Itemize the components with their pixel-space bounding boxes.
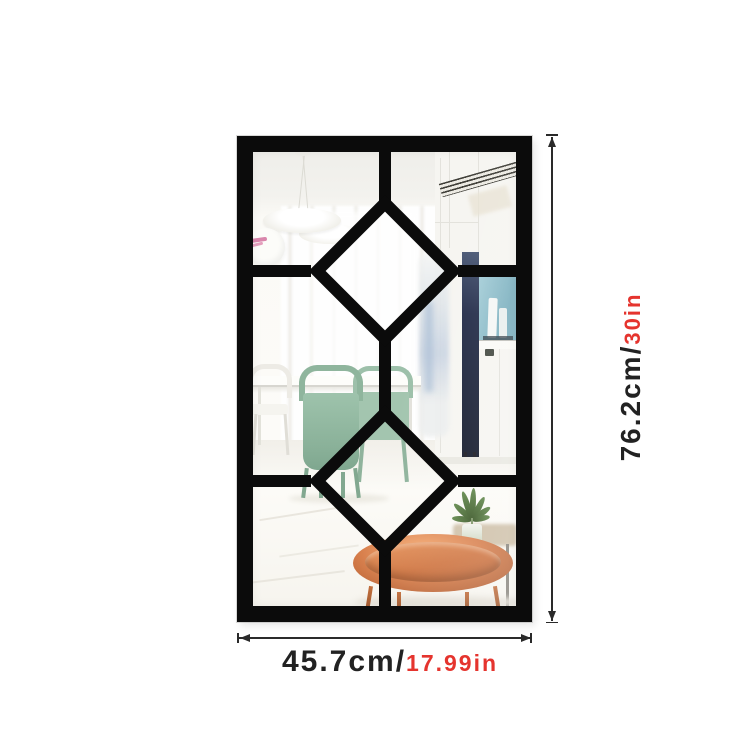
width-imperial-text: 17.99in (406, 650, 498, 676)
niche-ornament (499, 308, 507, 338)
baseboard (435, 457, 516, 464)
pendant-canopy (295, 152, 311, 156)
width-dimension-line (238, 637, 531, 639)
arrow-right-icon (521, 634, 531, 642)
arrow-left-icon (240, 634, 250, 642)
cabinet-seam (435, 222, 478, 223)
height-metric-text: 76.2cm/ (615, 345, 646, 462)
art-blue-streak (425, 302, 433, 392)
width-label: 45.7cm/17.99in (250, 644, 530, 680)
counter-object (485, 349, 494, 356)
frame-rail-upper-left (253, 265, 311, 277)
frame-rail-lower-right (458, 475, 516, 487)
product-image-canvas: 76.2cm/30in 45.7cm/17.99in (0, 0, 750, 750)
width-metric-text: 45.7cm/ (282, 645, 406, 678)
height-dimension-line (551, 137, 553, 621)
height-label: 76.2cm/30in (608, 292, 654, 462)
arrow-down-icon (548, 611, 556, 621)
frame-rail-upper-right (458, 265, 516, 277)
arrow-up-icon (548, 137, 556, 147)
width-left-cap (237, 633, 239, 643)
height-imperial-text: 30in (620, 293, 645, 345)
navy-cabinet (462, 252, 479, 458)
pendant-cord (303, 155, 309, 211)
copper-table-leg (465, 592, 469, 606)
frame-mullion-bottom (379, 551, 391, 607)
niche-ornament (487, 298, 497, 338)
cabinet-seam (499, 348, 500, 456)
frame-rail-lower-left (253, 475, 311, 487)
copper-table-leg (397, 592, 401, 606)
height-bottom-cap (546, 622, 558, 624)
niche-shelf-shadow (483, 336, 513, 340)
cabinet-seam (449, 152, 450, 248)
height-top-cap (546, 134, 558, 136)
mirror-frame (237, 136, 532, 622)
frame-mullion-middle (379, 339, 391, 411)
counter (479, 340, 516, 349)
white-chair-back (253, 364, 292, 398)
teal-display-niche (479, 276, 516, 340)
